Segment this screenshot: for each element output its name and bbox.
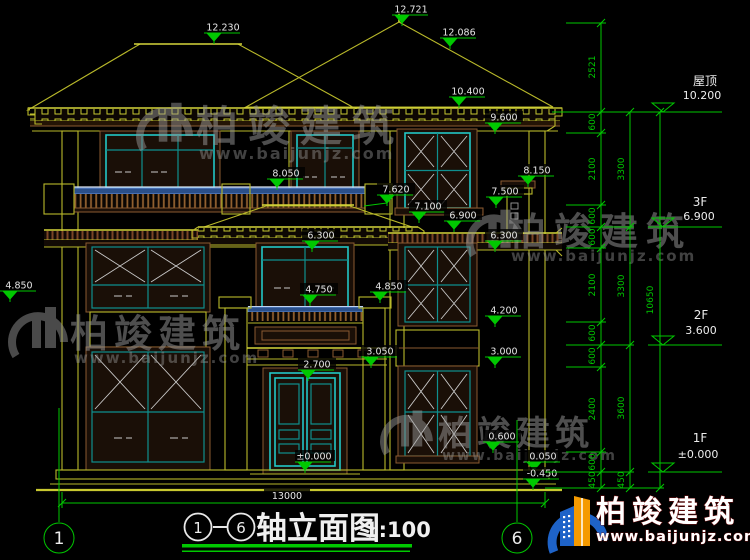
chain-a-label: 2100 [588,273,598,296]
svg-text:6.900: 6.900 [449,211,476,222]
chain-a-label: 2100 [588,157,598,180]
chain-a-label: 600 [588,347,598,364]
bottom-dimension: 13000 [58,489,549,508]
marker-4200: 4.200 [485,304,523,327]
title-name: 轴立面图 [256,511,380,547]
chain-c-label: 10650 [646,285,656,314]
main-roof [246,13,553,107]
porch-post-cap-right [359,297,391,308]
svg-text:7.620: 7.620 [382,185,409,196]
balcony-3f [44,184,392,214]
watermark-logo-icon [12,307,64,356]
svg-text:7.500: 7.500 [491,187,518,198]
svg-text:4.850: 4.850 [375,282,402,293]
svg-text:9.600: 9.600 [490,113,517,124]
window-2f-center [256,243,354,311]
chain-a-label: 2400 [588,397,598,420]
svg-text:7.100: 7.100 [414,202,441,213]
title-axis-end: 6 [236,519,246,537]
watermark-url: www.baijunjz.com [511,247,696,265]
brand-name: 柏竣建筑 [596,495,740,530]
marker-10400: 10.400 [449,85,487,108]
title-scale: 1:100 [364,518,431,542]
chain-a-label: 600 [588,324,598,341]
chain-b-label: 3300 [617,157,627,180]
level-3f-elev: 6.900 [683,210,715,223]
entry-steps [238,474,372,484]
svg-text:12.086: 12.086 [442,28,475,39]
title-axis-start: 1 [193,519,203,537]
brand-logo: 柏竣建筑 www.baijunjz.com [552,495,750,552]
svg-text:6.300: 6.300 [307,231,334,242]
svg-text:4.200: 4.200 [490,306,517,317]
watermark-left: 柏竣建筑 www.baijunjz.com [12,307,259,367]
chain-b-label: 3300 [617,274,627,297]
marker-12086: 12.086 [440,26,478,49]
balcony-post-left [44,184,74,214]
chain-a-label: 600 [588,207,598,224]
porch-post-cap-left [219,297,251,308]
chain-a-label: 450 [588,471,598,488]
window-2f-right [396,243,479,366]
watermark-url: www.baijunjz.com [74,349,259,367]
svg-text:0.600: 0.600 [488,432,515,443]
chain-a-label: 600 [588,228,598,245]
chain-a-label: 600 [588,453,598,470]
marker-12230: 12.230 [204,21,242,44]
svg-text:12.721: 12.721 [394,5,427,16]
level-1f-elev: ±0.000 [678,448,719,461]
svg-text:3.050: 3.050 [366,347,393,358]
title-underline-thin [182,551,410,553]
marker-neg0450: -0.450 [523,467,563,490]
level-2f-elev: 3.600 [685,324,717,337]
marker-4850-left: 4.850 [0,279,38,302]
chain-b-label: 450 [617,471,627,488]
dim-13000: 13000 [272,491,302,502]
svg-text:10.400: 10.400 [451,87,484,98]
axis-bubble-6-label: 6 [512,529,523,549]
level-roof-name: 屋顶 [693,74,717,88]
svg-text:6.300: 6.300 [490,231,517,242]
level-3f-name: 3F [693,195,708,209]
cad-elevation-screenshot: 柏竣建筑 www.baijunjz.com 柏竣建筑 www.baijunjz.… [0,0,750,560]
pilaster-left-corner [62,131,78,470]
svg-text:2.700: 2.700 [303,360,330,371]
title-block: 1 6 轴立面图 1:100 [182,511,431,552]
spandrel-panel [255,327,356,344]
marker-7100: 7.100 [409,200,447,223]
watermark-url: www.baijunjz.com [199,144,394,163]
chain-a-label: 600 [588,113,598,130]
chain-a-label: 2521 [588,56,598,79]
svg-text:8.050: 8.050 [272,169,299,180]
elevation-drawing: 柏竣建筑 www.baijunjz.com 柏竣建筑 www.baijunjz.… [0,0,750,560]
left-roof [28,44,358,110]
svg-text:4.850: 4.850 [5,281,32,292]
level-2f-name: 2F [694,308,709,322]
svg-text:8.150: 8.150 [523,166,550,177]
title-underline-thick [182,544,412,548]
marker-3000: 3.000 [485,345,523,368]
svg-text:±0.000: ±0.000 [296,452,331,463]
svg-text:12.230: 12.230 [206,23,239,34]
axis-bubble-1-label: 1 [54,529,65,549]
brand-url: www.baijunjz.com [596,529,750,545]
level-1f-name: 1F [693,431,708,445]
chain-b-label: 3600 [617,396,627,419]
svg-text:-0.450: -0.450 [527,469,558,480]
level-roof-elev: 10.200 [683,89,722,102]
svg-text:3.000: 3.000 [490,347,517,358]
svg-text:4.750: 4.750 [305,285,332,296]
svg-text:0.050: 0.050 [529,452,556,463]
